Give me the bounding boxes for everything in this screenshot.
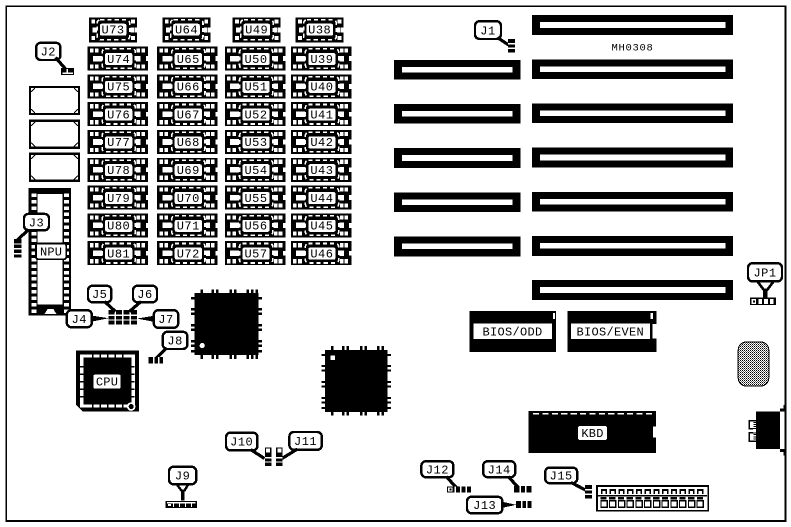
svg-text:MH0308: MH0308	[611, 42, 653, 54]
svg-text:U77: U77	[107, 136, 130, 150]
svg-text:J15: J15	[550, 470, 573, 484]
svg-text:U56: U56	[244, 220, 267, 234]
svg-text:U71: U71	[177, 220, 200, 234]
svg-text:U68: U68	[177, 136, 200, 150]
svg-text:J1: J1	[480, 24, 495, 38]
svg-text:U78: U78	[107, 164, 130, 178]
svg-text:J14: J14	[488, 463, 511, 477]
svg-text:BIOS/ODD: BIOS/ODD	[482, 326, 542, 340]
svg-text:U76: U76	[107, 108, 130, 122]
svg-text:J8: J8	[167, 335, 182, 349]
svg-text:U38: U38	[308, 24, 331, 38]
svg-text:U74: U74	[107, 53, 130, 67]
svg-text:U79: U79	[107, 192, 130, 206]
svg-text:U53: U53	[244, 136, 267, 150]
svg-text:U39: U39	[310, 53, 333, 67]
svg-text:U66: U66	[177, 81, 200, 95]
svg-text:BIOS/EVEN: BIOS/EVEN	[577, 326, 645, 340]
svg-text:U81: U81	[107, 247, 130, 261]
svg-text:J12: J12	[426, 463, 449, 477]
svg-text:U54: U54	[244, 164, 267, 178]
svg-text:J11: J11	[294, 435, 317, 449]
svg-text:J9: J9	[175, 470, 190, 484]
svg-text:U55: U55	[244, 192, 267, 206]
svg-text:U44: U44	[310, 192, 333, 206]
svg-text:J7: J7	[158, 313, 173, 327]
svg-text:J5: J5	[92, 288, 107, 302]
svg-text:U64: U64	[175, 24, 198, 38]
svg-text:J2: J2	[41, 46, 56, 60]
svg-text:J13: J13	[473, 499, 496, 513]
svg-text:CPU: CPU	[96, 376, 118, 390]
svg-text:J4: J4	[72, 313, 87, 327]
svg-text:U40: U40	[310, 81, 333, 95]
svg-text:JP1: JP1	[753, 267, 776, 281]
svg-text:U69: U69	[177, 164, 200, 178]
svg-text:U41: U41	[310, 108, 333, 122]
svg-text:NPU: NPU	[40, 245, 62, 259]
svg-text:U57: U57	[244, 247, 267, 261]
svg-text:U72: U72	[177, 247, 200, 261]
svg-text:U52: U52	[244, 108, 267, 122]
svg-text:U67: U67	[177, 108, 200, 122]
svg-text:U46: U46	[310, 247, 333, 261]
svg-text:U65: U65	[177, 53, 200, 67]
svg-text:J10: J10	[230, 436, 253, 450]
svg-text:U49: U49	[245, 24, 268, 38]
svg-text:U42: U42	[310, 136, 333, 150]
svg-text:J3: J3	[29, 216, 44, 230]
svg-text:U75: U75	[107, 81, 130, 95]
svg-text:U51: U51	[244, 81, 267, 95]
svg-text:U45: U45	[310, 220, 333, 234]
svg-text:J6: J6	[137, 288, 152, 302]
svg-text:U73: U73	[102, 24, 125, 38]
svg-text:KBD: KBD	[581, 427, 603, 441]
svg-text:U50: U50	[244, 53, 267, 67]
svg-text:U43: U43	[310, 164, 333, 178]
svg-text:U80: U80	[107, 220, 130, 234]
svg-text:U70: U70	[177, 192, 200, 206]
